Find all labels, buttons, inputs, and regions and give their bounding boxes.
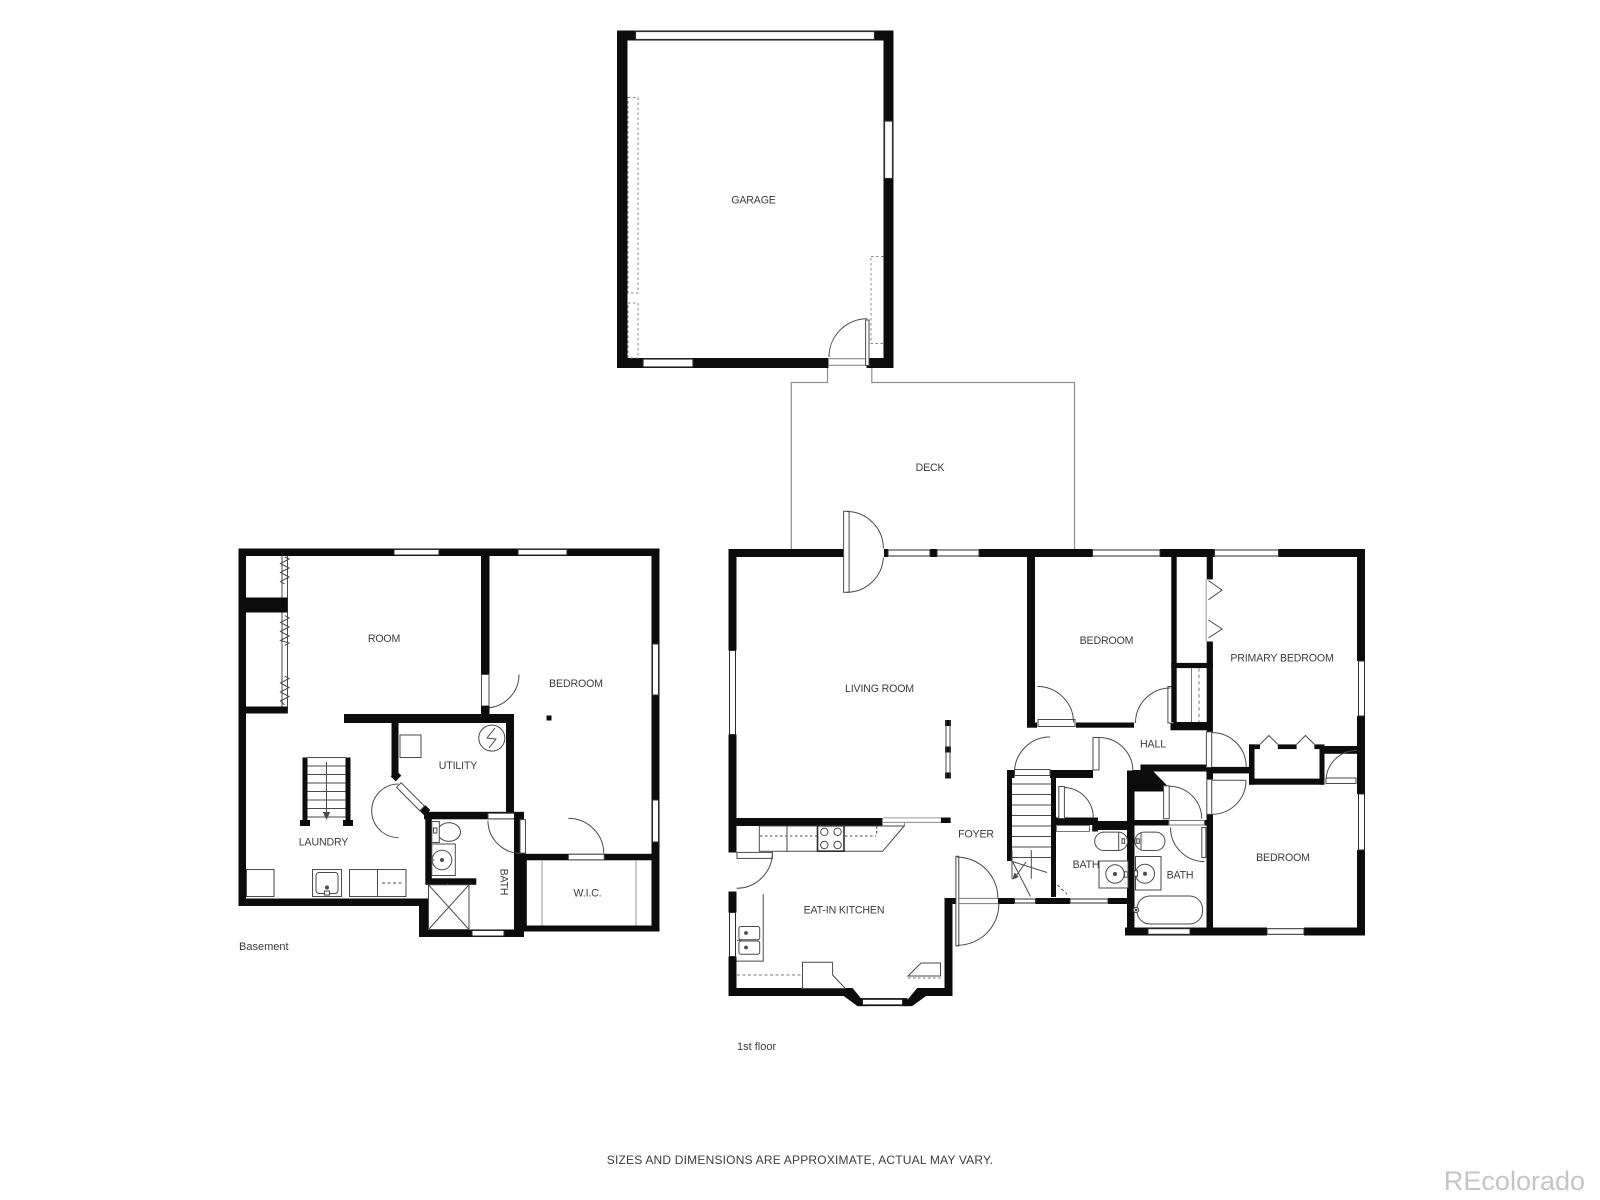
svg-text:BATH: BATH xyxy=(1167,870,1194,882)
svg-text:1st floor: 1st floor xyxy=(737,1041,776,1053)
svg-text:LIVING ROOM: LIVING ROOM xyxy=(845,683,914,695)
svg-text:EAT-IN KITCHEN: EAT-IN KITCHEN xyxy=(804,905,885,917)
svg-text:ROOM: ROOM xyxy=(368,633,400,645)
svg-text:DECK: DECK xyxy=(916,462,945,474)
svg-text:FOYER: FOYER xyxy=(958,829,994,841)
svg-text:REcolorado: REcolorado xyxy=(1444,1166,1585,1196)
svg-text:SIZES AND DIMENSIONS ARE APPRO: SIZES AND DIMENSIONS ARE APPROXIMATE, AC… xyxy=(607,1153,993,1167)
svg-text:LAUNDRY: LAUNDRY xyxy=(299,837,348,849)
svg-text:PRIMARY BEDROOM: PRIMARY BEDROOM xyxy=(1230,653,1333,665)
svg-text:BEDROOM: BEDROOM xyxy=(1080,635,1134,647)
svg-text:HALL: HALL xyxy=(1140,739,1166,751)
svg-text:BATH: BATH xyxy=(498,869,510,896)
svg-text:UTILITY: UTILITY xyxy=(439,760,477,772)
svg-text:GARAGE: GARAGE xyxy=(731,195,776,207)
svg-text:BEDROOM: BEDROOM xyxy=(1256,852,1310,864)
svg-text:Basement: Basement xyxy=(239,941,289,953)
svg-text:W.I.C.: W.I.C. xyxy=(574,888,602,900)
svg-text:BATH: BATH xyxy=(1073,859,1100,871)
svg-text:BEDROOM: BEDROOM xyxy=(549,678,603,690)
